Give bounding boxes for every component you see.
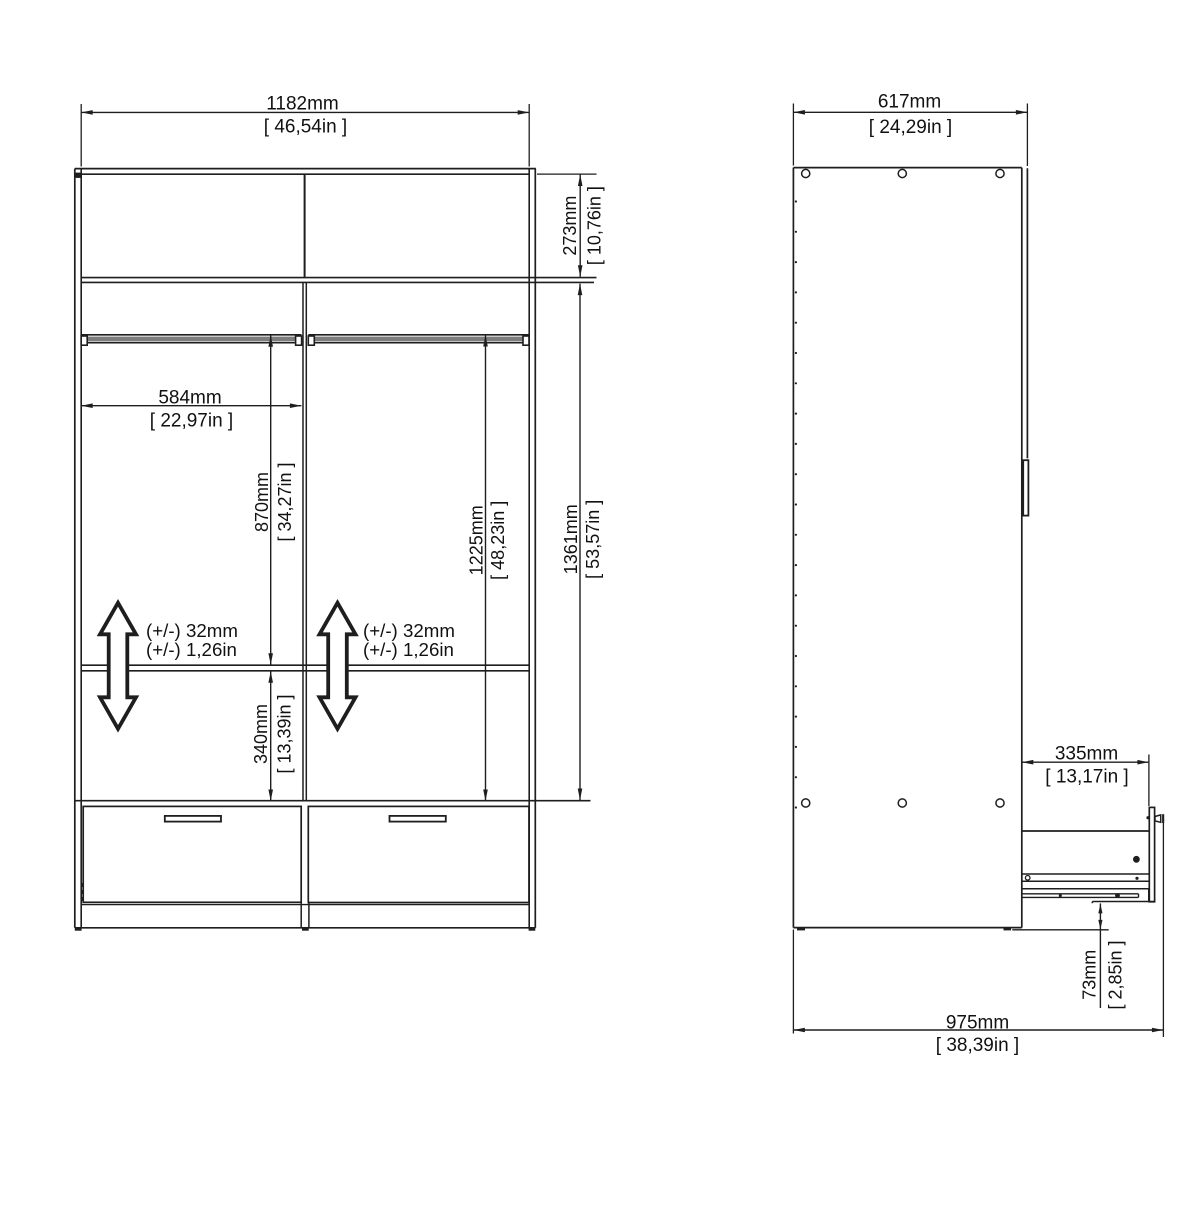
svg-text:1225mm: 1225mm: [467, 505, 487, 575]
svg-text:[ 34,27in ]: [ 34,27in ]: [275, 462, 295, 541]
svg-text:335mm: 335mm: [1055, 744, 1118, 765]
svg-text:(+/-) 1,26in: (+/-) 1,26in: [146, 639, 237, 660]
svg-text:617mm: 617mm: [878, 92, 941, 113]
svg-text:584mm: 584mm: [158, 387, 221, 408]
svg-text:[ 22,97in ]: [ 22,97in ]: [150, 411, 233, 432]
svg-text:(+/-) 1,26in: (+/-) 1,26in: [363, 639, 454, 660]
svg-text:[ 48,23in ]: [ 48,23in ]: [488, 501, 508, 580]
svg-text:870mm: 870mm: [252, 472, 272, 532]
svg-text:340mm: 340mm: [251, 704, 271, 764]
svg-text:1361mm: 1361mm: [561, 504, 581, 574]
svg-text:[ 38,39in ]: [ 38,39in ]: [936, 1035, 1019, 1056]
svg-text:73mm: 73mm: [1079, 950, 1099, 1000]
svg-text:[ 46,54in ]: [ 46,54in ]: [264, 116, 347, 137]
svg-text:[ 53,57in ]: [ 53,57in ]: [583, 500, 603, 579]
svg-text:[ 13,17in ]: [ 13,17in ]: [1045, 767, 1128, 788]
svg-text:273mm: 273mm: [560, 196, 580, 256]
svg-text:[ 24,29in ]: [ 24,29in ]: [869, 117, 952, 138]
svg-text:975mm: 975mm: [946, 1012, 1009, 1033]
svg-text:[ 13,39in ]: [ 13,39in ]: [274, 694, 294, 773]
svg-text:1182mm: 1182mm: [266, 93, 339, 114]
svg-text:[ 10,76in ]: [ 10,76in ]: [585, 186, 605, 265]
svg-text:[ 2,85in ]: [ 2,85in ]: [1105, 940, 1125, 1009]
